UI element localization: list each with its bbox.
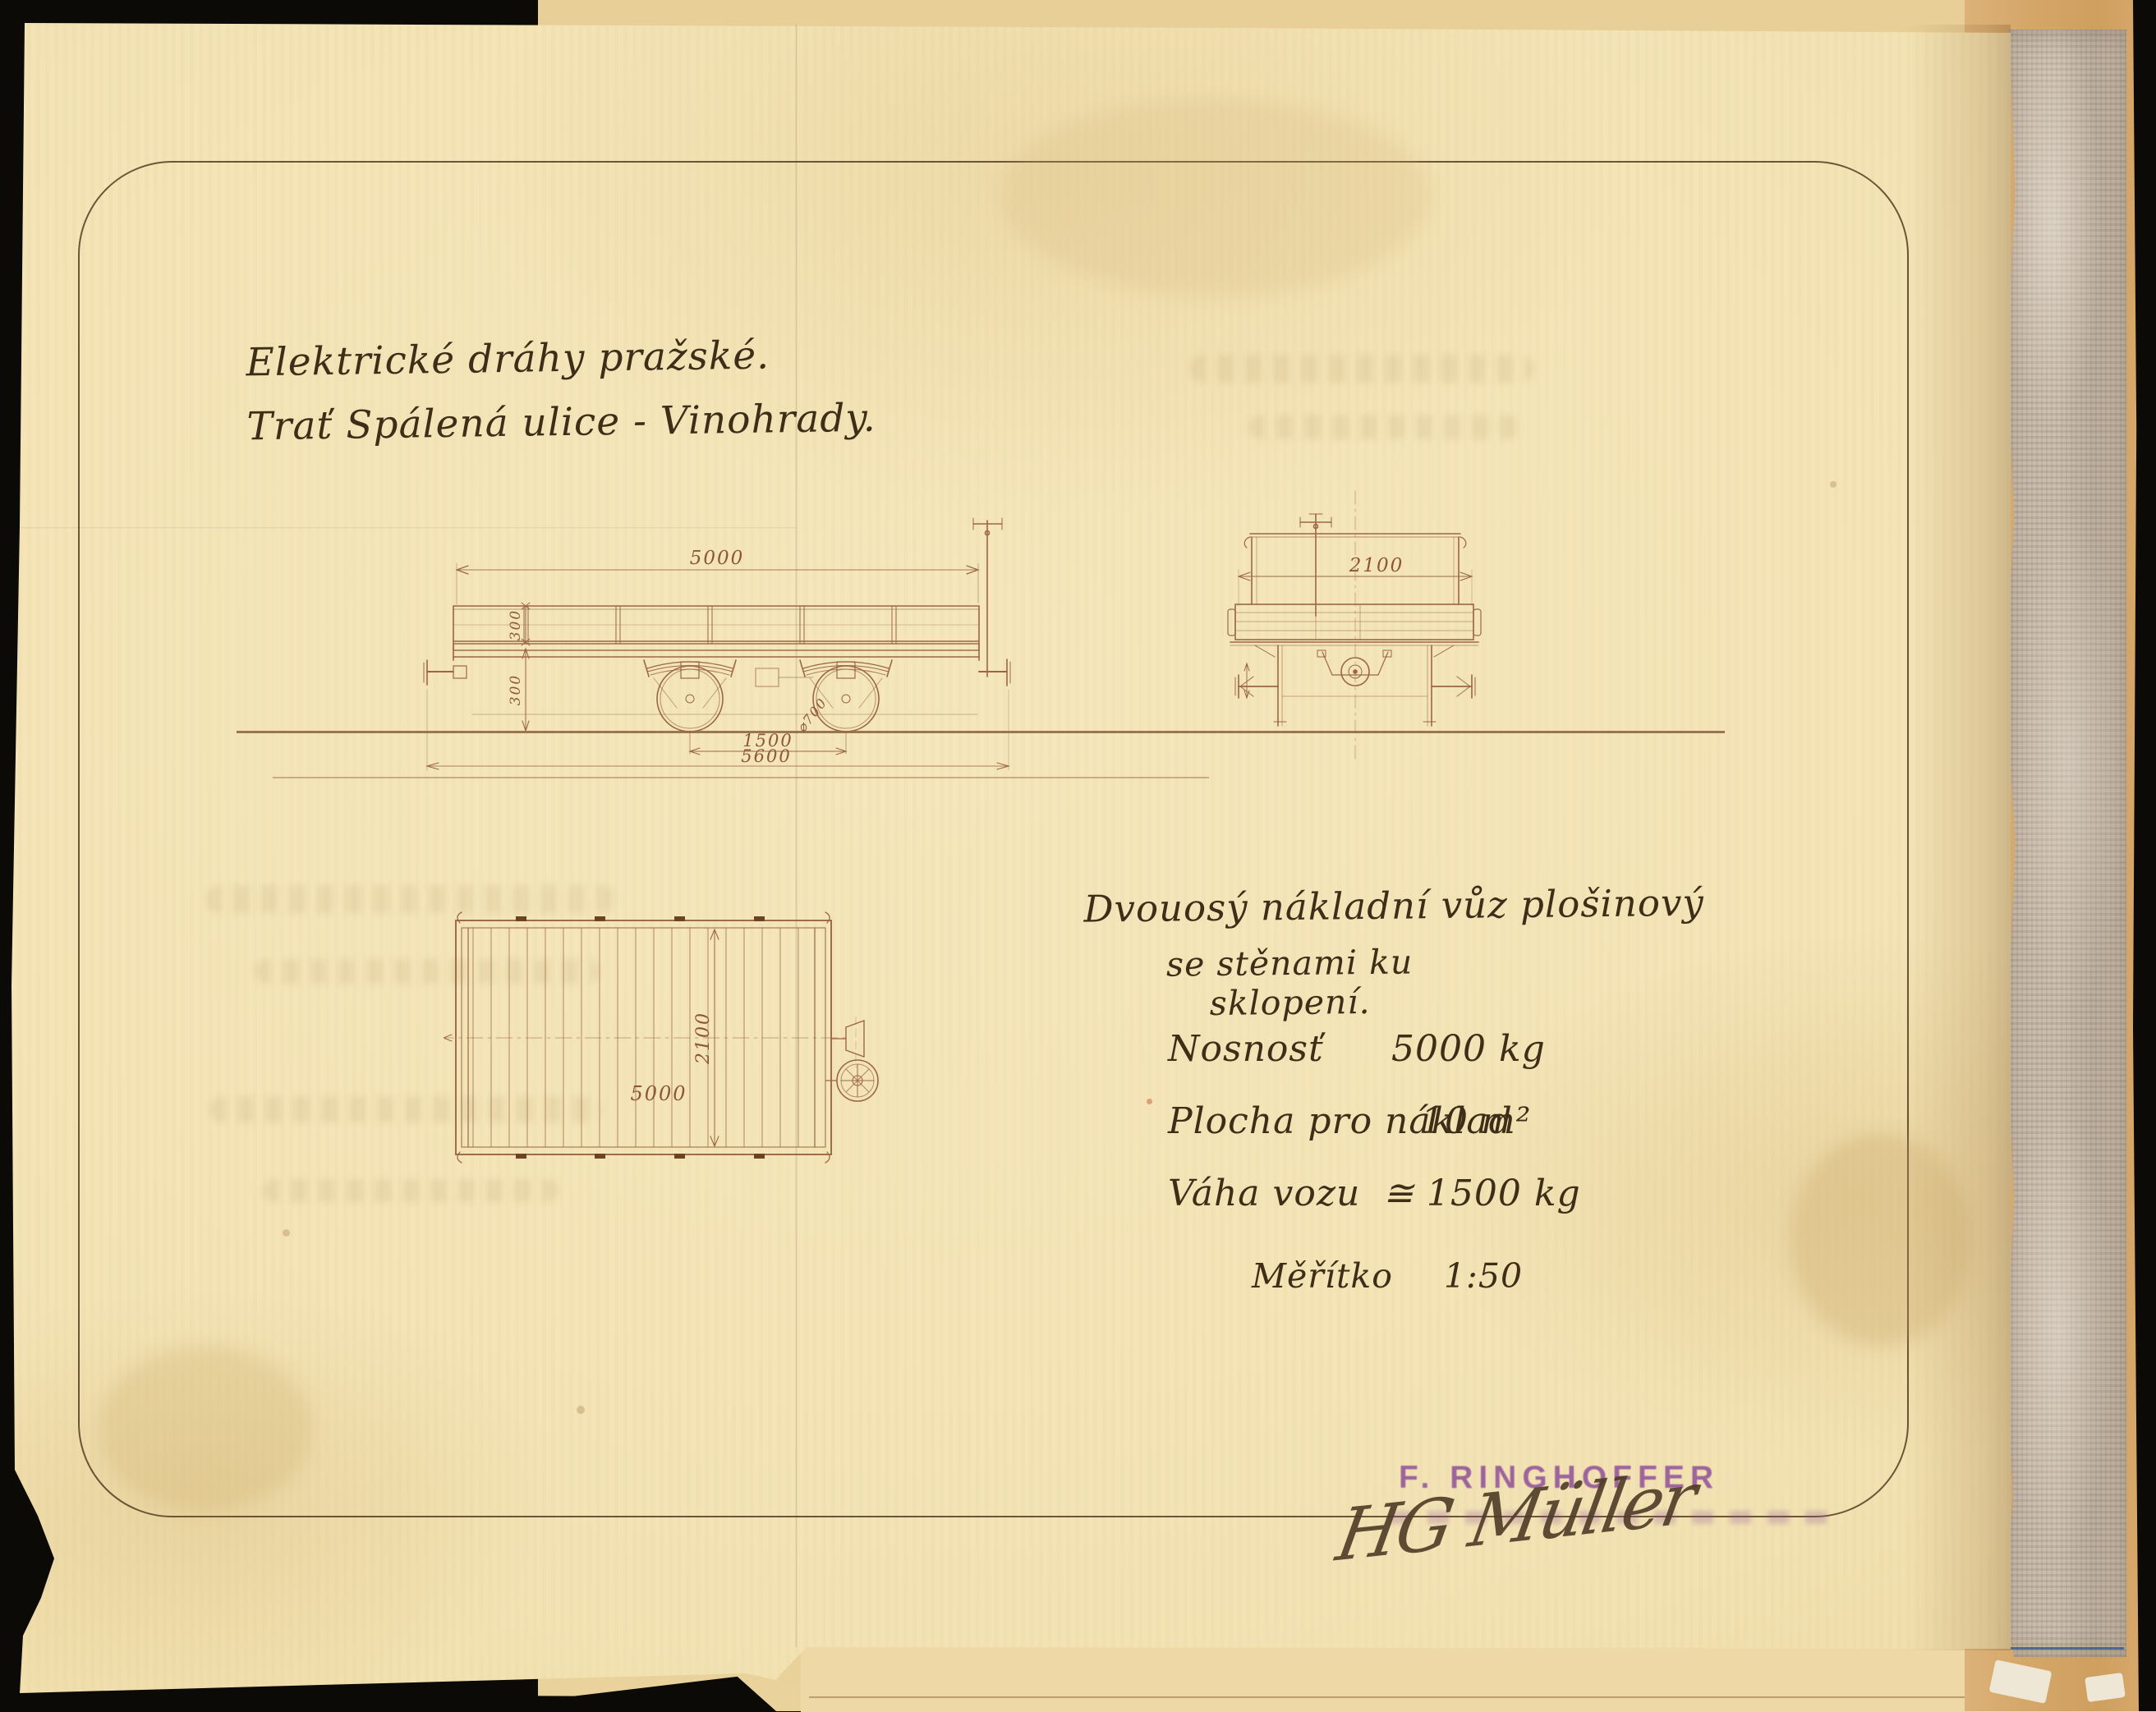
ink-bleed-through bbox=[1189, 355, 1534, 383]
dim-wheel-diameter-label: ⌀700 bbox=[793, 695, 830, 736]
torn-paper-fragment bbox=[2085, 1673, 2126, 1702]
back-page-edge-line bbox=[809, 1696, 2156, 1698]
plan-width-label: 2100 bbox=[693, 1012, 714, 1065]
side-elevation-drawing: 5000 300 300 ⌀700 1500 5600 bbox=[402, 507, 1101, 778]
stake-pockets bbox=[516, 916, 765, 1159]
dim-over-buffers-label: 5600 bbox=[741, 746, 791, 766]
paper-stain bbox=[1002, 99, 1429, 296]
spec-row-load-area: Plocha pro náklad 10 m² bbox=[1168, 1100, 1546, 1173]
binding-blue-line bbox=[2011, 1647, 2124, 1650]
plan-view-drawing: 2100 5000 bbox=[444, 893, 1084, 1189]
foxing-dot bbox=[1147, 1099, 1152, 1104]
plan-length-label: 5000 bbox=[630, 1082, 687, 1105]
spec-value: ≅ 1500 kg bbox=[1383, 1173, 1581, 1214]
scale-value: 1:50 bbox=[1444, 1256, 1523, 1296]
spec-table: Nosnosť 5000 kg Plocha pro náklad 10 m² … bbox=[1168, 1028, 1546, 1245]
foxing-dot bbox=[577, 1406, 585, 1414]
sheet-edge-shading bbox=[1905, 25, 2011, 1650]
spec-value: 5000 kg bbox=[1391, 1028, 1546, 1070]
back-page-bottom-edge bbox=[801, 1645, 2156, 1712]
spec-label: Nosnosť bbox=[1168, 1028, 1324, 1070]
description-line-2: se stěnami ku sklopení. bbox=[1084, 941, 1496, 1024]
header-line-2: Trať Spálená ulice - Vinohrady. bbox=[246, 387, 876, 460]
foxing-dot bbox=[1830, 481, 1837, 488]
binding-cloth-strip bbox=[2002, 30, 2126, 1657]
spec-label: Váha vozu bbox=[1168, 1173, 1360, 1214]
spec-row-capacity: Nosnosť 5000 kg bbox=[1168, 1028, 1546, 1100]
dim-wall-height-label: 300 bbox=[508, 609, 524, 640]
end-view-drawing: 2100 bbox=[1206, 489, 1600, 764]
spec-value: 10 m² bbox=[1421, 1100, 1531, 1142]
scale-note: Měřítko1:50 bbox=[1252, 1256, 1523, 1296]
wagon-description: Dvouosý nákladní vůz plošinový se stěnam… bbox=[1083, 883, 1496, 1024]
dim-length-label: 5000 bbox=[690, 548, 745, 569]
header-line-1: Elektrické dráhy pražské. bbox=[246, 323, 876, 396]
dim-frame-height-label: 300 bbox=[508, 674, 524, 705]
paper-stain bbox=[1791, 1133, 1971, 1347]
document-header: Elektrické dráhy pražské. Trať Spálená u… bbox=[246, 323, 876, 460]
ink-bleed-through bbox=[1248, 415, 1519, 439]
wheel-assembly-front bbox=[644, 660, 736, 732]
spec-row-weight: Váha vozu ≅ 1500 kg bbox=[1168, 1173, 1546, 1245]
foxing-dot bbox=[283, 1229, 290, 1237]
dim-width-label: 2100 bbox=[1349, 555, 1404, 576]
description-line-1: Dvouosý nákladní vůz plošinový bbox=[1083, 883, 1495, 930]
scanned-archive-page: Elektrické dráhy pražské. Trať Spálená u… bbox=[0, 0, 2156, 1711]
scale-label: Měřítko bbox=[1252, 1256, 1393, 1296]
paper-stain bbox=[99, 1347, 312, 1511]
